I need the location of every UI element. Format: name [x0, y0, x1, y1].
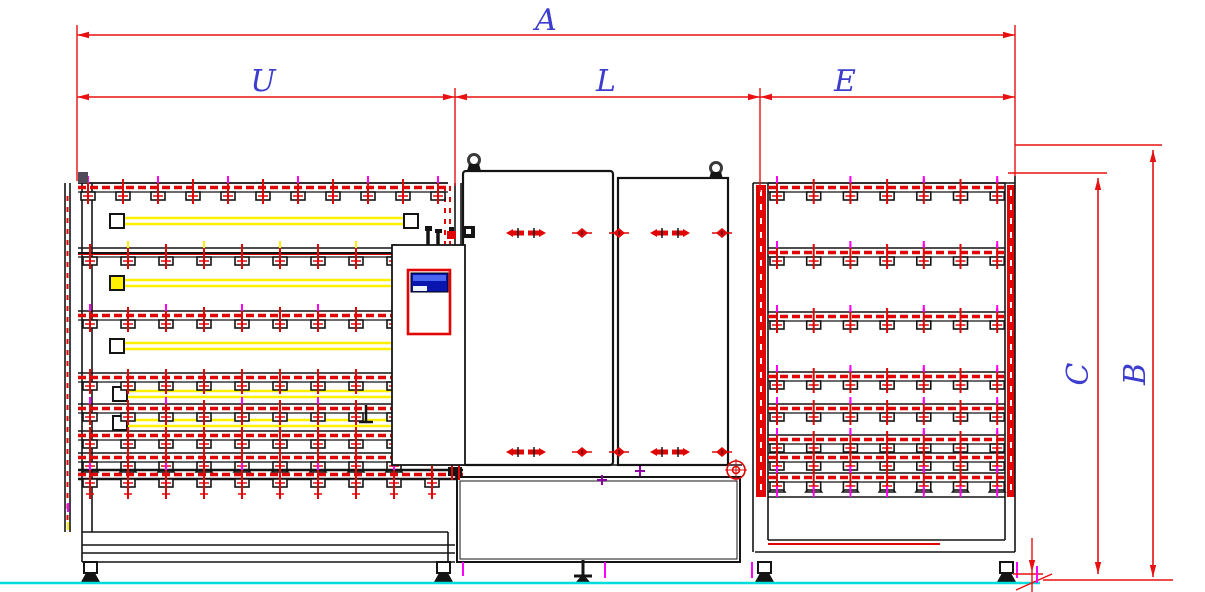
washer-cabin [392, 155, 747, 583]
outfeed-conveyor [752, 176, 1017, 582]
washer-tank [457, 477, 740, 562]
washer-door-right [618, 178, 728, 465]
dim-label-washer-l: L [595, 64, 616, 99]
dim-label-infeed-u: U [250, 64, 277, 99]
cad-drawing-page: A U L E B C [0, 0, 1205, 592]
dim-label-height-b: B [1118, 363, 1153, 386]
dim-label-overall-a: A [532, 3, 557, 38]
cad-canvas: A U L E B C [0, 0, 1205, 592]
dim-label-height-c: C [1061, 362, 1096, 385]
washer-door-left [463, 171, 613, 465]
dim-label-outfeed-e: E [833, 64, 856, 99]
